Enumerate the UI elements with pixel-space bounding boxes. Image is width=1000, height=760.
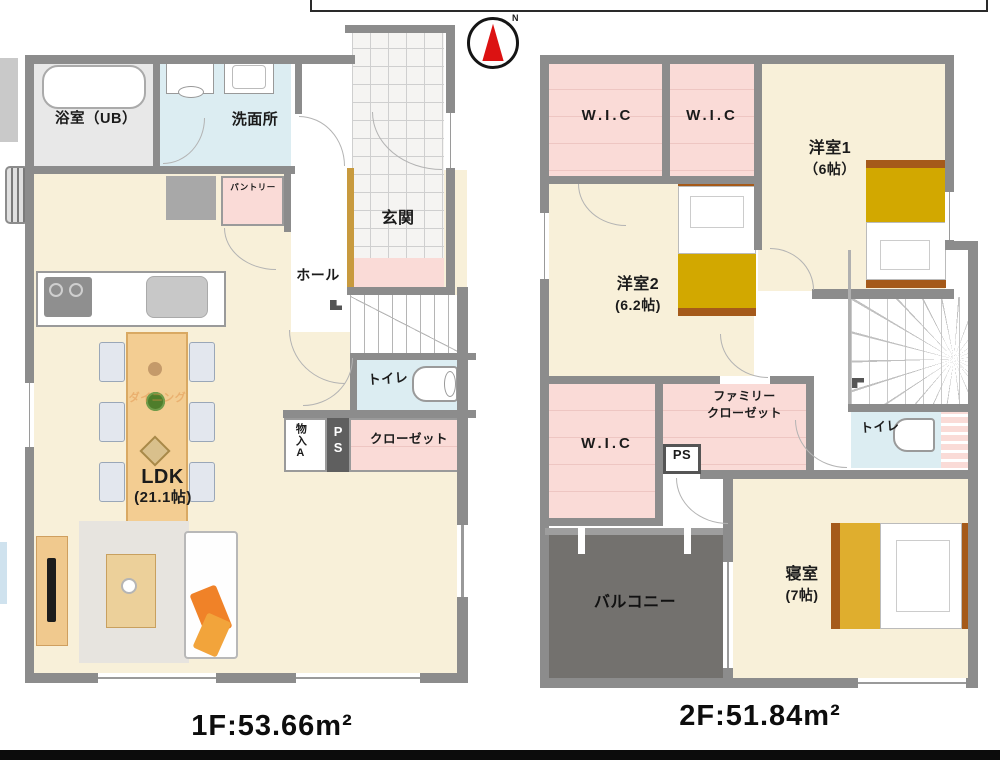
wall xyxy=(540,55,549,688)
bed-master-pillow xyxy=(896,540,950,612)
wall xyxy=(545,528,725,535)
edge-artifact xyxy=(0,542,7,604)
ps-label-2f: PS xyxy=(666,448,698,463)
balcony-sliding-door xyxy=(723,562,733,668)
dining-chair xyxy=(189,342,215,382)
wall xyxy=(345,25,455,33)
wall xyxy=(548,518,663,526)
wall xyxy=(848,404,970,412)
toilet-tank-1f xyxy=(444,371,456,397)
table-vase xyxy=(148,362,162,376)
wic3-label: W.I.C xyxy=(562,436,652,453)
window xyxy=(296,673,420,683)
stairs-2f xyxy=(851,297,968,404)
table-lamp xyxy=(121,578,137,594)
bed-bedroom1-pillow xyxy=(880,240,930,270)
bottom-bar xyxy=(0,750,1000,760)
balcony-label: バルコニー xyxy=(570,594,700,612)
ldk-size-label: (21.1帖) xyxy=(103,490,223,507)
compass-north-label: N xyxy=(512,13,519,23)
balcony-post xyxy=(684,528,691,554)
stove xyxy=(44,277,92,317)
wall xyxy=(153,62,160,170)
wall xyxy=(700,470,970,479)
wall xyxy=(25,166,295,174)
entrance-step xyxy=(347,168,354,288)
outdoor-unit xyxy=(0,58,18,142)
kitchen-sink xyxy=(146,276,208,318)
wall xyxy=(446,168,455,295)
wall xyxy=(25,55,355,64)
floor2-area-label: 2F:51.84m² xyxy=(580,700,940,733)
hall-label: ホール xyxy=(288,268,348,284)
wall xyxy=(968,241,978,688)
wic2-label: W.I.C xyxy=(672,108,752,125)
wall xyxy=(283,410,476,418)
bed-master-blanket xyxy=(840,523,880,629)
bed-bedroom1-frame xyxy=(866,280,946,288)
compass-needle-icon xyxy=(474,23,512,63)
wall xyxy=(347,287,454,295)
bedroom2-label: 洋室2 xyxy=(598,276,678,294)
top-box xyxy=(310,0,988,12)
floor1-area-label: 1F:53.66m² xyxy=(92,710,452,743)
wic1-label: W.I.C xyxy=(560,108,655,125)
washing-machine-drum xyxy=(232,65,266,89)
bed-bedroom1-blanket xyxy=(866,168,946,222)
bedroom1-label: 洋室1 xyxy=(790,140,870,158)
window xyxy=(25,383,34,447)
bedroom2-size-label: (6.2帖) xyxy=(592,298,684,314)
bath-label: 浴室（UB） xyxy=(40,111,152,127)
wall xyxy=(284,170,291,232)
master-label: 寝室 xyxy=(762,566,842,584)
wall xyxy=(655,384,663,524)
tv xyxy=(47,558,56,622)
storage-label: 物入A xyxy=(294,423,306,460)
wall xyxy=(662,62,670,176)
dining-chair xyxy=(99,402,125,442)
bed-bedroom1-frame xyxy=(866,160,946,168)
dining-chair xyxy=(99,342,125,382)
bedroom1-size-label: （6帖） xyxy=(785,162,875,178)
wall xyxy=(446,25,455,115)
compass xyxy=(467,17,519,69)
window xyxy=(945,192,954,240)
entrance-door-gap xyxy=(446,113,455,168)
window xyxy=(858,678,966,688)
wall xyxy=(548,376,720,384)
wall xyxy=(812,289,954,299)
wall xyxy=(540,55,954,64)
wall xyxy=(548,176,760,184)
entrance-label: 玄関 xyxy=(362,210,434,228)
dining-chair xyxy=(189,402,215,442)
stairs-1f xyxy=(350,295,467,355)
floorplan-canvas: N ダイニング xyxy=(0,0,1000,760)
bed-bedroom2-blanket xyxy=(678,254,756,308)
wall xyxy=(848,250,851,404)
closet-label-1f: クローゼット xyxy=(355,432,463,446)
window xyxy=(540,213,549,279)
stove-burner xyxy=(69,283,83,297)
vanity-bowl xyxy=(178,86,204,98)
washroom-label: 洗面所 xyxy=(205,112,305,129)
bed-bedroom2-pillow xyxy=(690,196,744,228)
door-arc-master xyxy=(676,478,728,524)
master-size-label: (7帖) xyxy=(760,588,844,604)
bed-bedroom2-frame xyxy=(678,308,756,316)
stove-burner xyxy=(49,283,63,297)
toilet-shelf-2f xyxy=(941,410,968,468)
wall xyxy=(457,287,468,683)
wall xyxy=(295,62,302,114)
wall xyxy=(770,376,814,384)
ldk-label: LDK xyxy=(110,466,215,488)
pantry-label: パントリー xyxy=(222,183,284,193)
dining-watermark: ダイニング xyxy=(120,392,195,404)
window xyxy=(457,525,468,597)
balcony-post xyxy=(578,528,585,554)
entrance-floor-strip xyxy=(352,258,444,288)
bathtub xyxy=(42,65,146,109)
ps-label-1f: PS xyxy=(330,424,345,456)
family-closet-label-2: クローゼット xyxy=(693,407,796,420)
refrigerator xyxy=(166,176,216,220)
family-closet-label-1: ファミリー xyxy=(697,390,792,403)
wall xyxy=(25,55,34,682)
window xyxy=(98,673,216,683)
wall xyxy=(754,62,762,250)
